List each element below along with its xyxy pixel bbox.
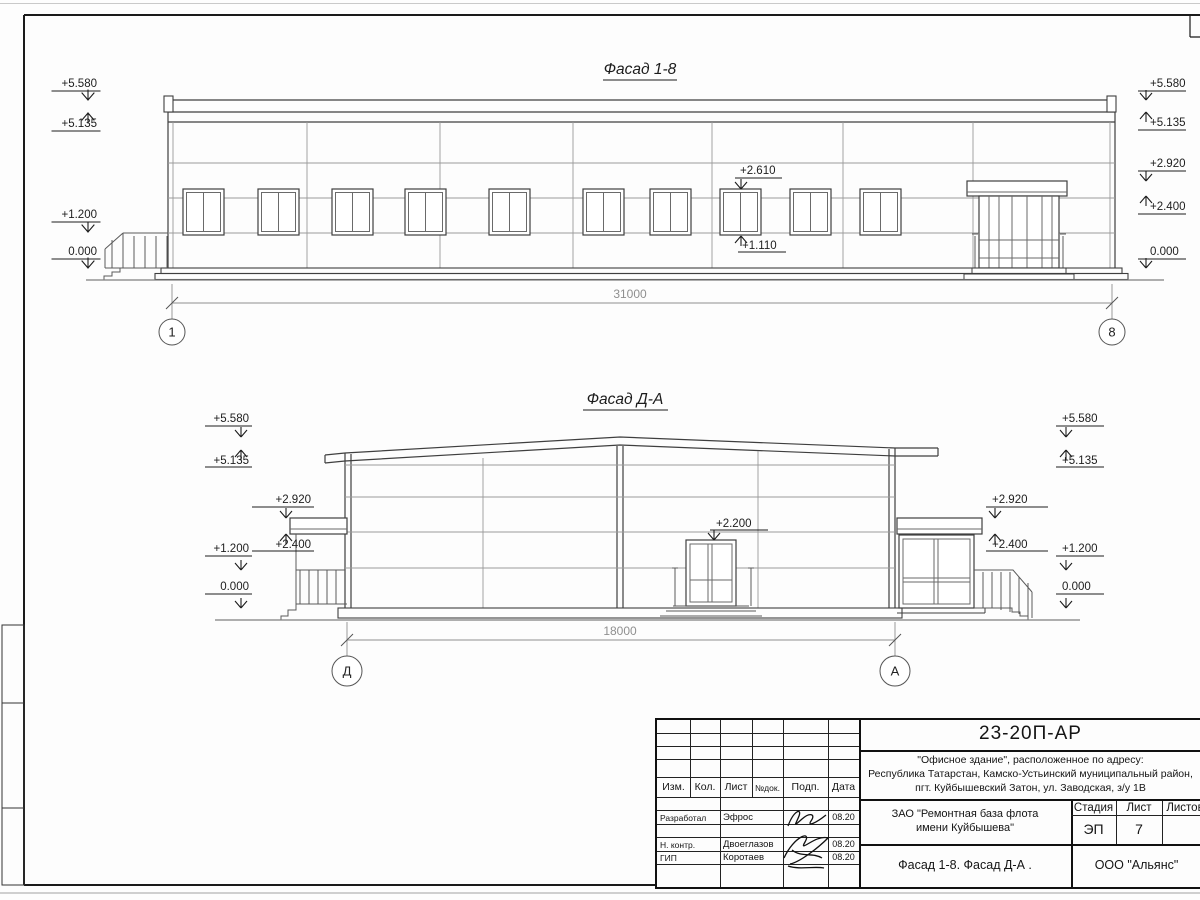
- facade-d-a-vestibule: [897, 518, 985, 613]
- stage-label: Стадия: [1071, 802, 1116, 814]
- axis-bubble-1: 1: [159, 319, 185, 345]
- stage-value: ЭП: [1071, 821, 1116, 837]
- svg-text:+5.135: +5.135: [1062, 455, 1098, 467]
- row-date-developer: 08.20: [828, 812, 859, 822]
- col-podp: Подп.: [783, 781, 828, 793]
- svg-text:+5.135: +5.135: [1150, 117, 1186, 129]
- sheet-edge: [0, 892, 1200, 894]
- col-list: Лист: [720, 781, 752, 793]
- svg-text:+2.610: +2.610: [740, 165, 776, 177]
- object-address-line3: пгт. Куйбышевский Затон, ул. Заводская, …: [859, 782, 1200, 794]
- svg-text:+2.400: +2.400: [1150, 201, 1186, 213]
- svg-text:+2.400: +2.400: [276, 539, 312, 551]
- facade-d-a-outline: [325, 437, 938, 608]
- row-name-developer: Эфрос: [723, 812, 781, 823]
- svg-text:+1.200: +1.200: [1062, 543, 1098, 555]
- row-role-developer: Разработал: [660, 813, 720, 823]
- dim-value-18000: 18000: [603, 624, 637, 638]
- elevation-marks-right-bottom: +5.580 +5.135 +2.920 +2.400 +1.200 0.000: [986, 413, 1104, 608]
- organization-name: ООО "Альянс": [1071, 858, 1200, 872]
- title-block: Изм. Кол. Лист №док. Подп. Дата Разработ…: [655, 718, 1200, 889]
- svg-text:+5.135: +5.135: [214, 455, 250, 467]
- svg-text:0.000: 0.000: [220, 581, 249, 593]
- row-name-gip: Коротаев: [723, 852, 783, 863]
- facade-1-8-title: Фасад 1-8: [604, 61, 677, 78]
- svg-text:+2.920: +2.920: [992, 494, 1028, 506]
- row-name-ncontrol: Двоеглазов: [723, 839, 783, 850]
- object-address-line2: Республика Татарстан, Камско-Устьинский …: [859, 768, 1200, 780]
- sheets-label: Листов: [1162, 802, 1200, 814]
- svg-text:+5.580: +5.580: [62, 78, 98, 90]
- svg-text:+5.580: +5.580: [1150, 78, 1186, 90]
- svg-text:А: А: [891, 664, 900, 679]
- door-head-mark: +2.200: [708, 518, 768, 540]
- facade-d-a-porch-left: [281, 518, 347, 620]
- facade-d-a-plinth: [338, 608, 902, 618]
- svg-text:+2.200: +2.200: [716, 518, 752, 530]
- client-name-line1: ЗАО "Ремонтная база флота: [859, 808, 1071, 820]
- sheet-label: Лист: [1116, 802, 1162, 814]
- facade-d-a-view: Фасад Д-А: [205, 391, 1104, 686]
- facade-d-a-door: [660, 540, 762, 616]
- col-data: Дата: [828, 781, 859, 793]
- svg-text:+1.110: +1.110: [742, 240, 777, 252]
- row-role-ncontrol: Н. контр.: [660, 840, 720, 850]
- facade-d-a-panel-joints: [345, 451, 895, 608]
- svg-text:0.000: 0.000: [1150, 246, 1179, 258]
- elevation-marks-right-top: +5.580 +5.135 +2.920 +2.400 0.000: [1138, 78, 1186, 268]
- svg-text:+5.580: +5.580: [1062, 413, 1098, 425]
- parapet-post-right: [1107, 96, 1116, 112]
- row-role-gip: ГИП: [660, 853, 720, 863]
- sheet-number: 7: [1116, 821, 1162, 837]
- facade-1-8-windows: [183, 189, 901, 235]
- svg-text:8: 8: [1108, 325, 1115, 340]
- client-name-line2: имени Куйбышева": [859, 822, 1071, 834]
- facade-d-a-dimension: 18000: [341, 622, 901, 656]
- col-kol: Кол.: [690, 781, 720, 793]
- svg-text:0.000: 0.000: [68, 246, 97, 258]
- svg-text:+5.580: +5.580: [214, 413, 250, 425]
- facade-1-8-entrance: [964, 181, 1074, 280]
- axis-bubble-d: Д: [332, 656, 362, 686]
- facade-d-a-title: Фасад Д-А: [587, 391, 664, 408]
- parapet-post-left: [164, 96, 173, 112]
- window-head-mark: +2.610: [735, 165, 782, 189]
- drawing-sheet: Фасад 1-8: [0, 0, 1200, 900]
- svg-text:+1.200: +1.200: [214, 543, 250, 555]
- svg-text:+5.135: +5.135: [62, 118, 98, 130]
- sheet-title: Фасад 1-8. Фасад Д-А .: [859, 858, 1071, 872]
- axis-bubble-8: 8: [1099, 319, 1125, 345]
- signature-gip: [778, 828, 834, 872]
- svg-text:+1.200: +1.200: [62, 209, 98, 221]
- svg-text:Д: Д: [343, 664, 352, 679]
- elevation-marks-left-top: +5.580 +5.135 +1.200 0.000: [52, 78, 100, 268]
- col-izm: Изм.: [657, 781, 690, 793]
- object-address-line1: "Офисное здание", расположенное по адрес…: [859, 754, 1200, 766]
- svg-text:1: 1: [168, 325, 175, 340]
- svg-text:+2.920: +2.920: [1150, 158, 1186, 170]
- axis-bubble-a: А: [880, 656, 910, 686]
- window-sill-mark: +1.110: [735, 236, 786, 252]
- facade-1-8-view: Фасад 1-8: [52, 61, 1186, 345]
- facade-1-8-dimension: 31000: [166, 284, 1118, 319]
- svg-text:+2.920: +2.920: [276, 494, 312, 506]
- elevation-marks-left-bottom: +5.580 +5.135 +2.920 +2.400 +1.200 0.000: [205, 413, 314, 608]
- left-margin-boxes: [2, 625, 24, 885]
- col-doc: №док.: [752, 783, 783, 793]
- doc-code: 23-20П-АР: [859, 723, 1200, 745]
- svg-text:0.000: 0.000: [1062, 581, 1091, 593]
- svg-text:+2.400: +2.400: [992, 539, 1028, 551]
- dim-value-31000: 31000: [613, 287, 647, 301]
